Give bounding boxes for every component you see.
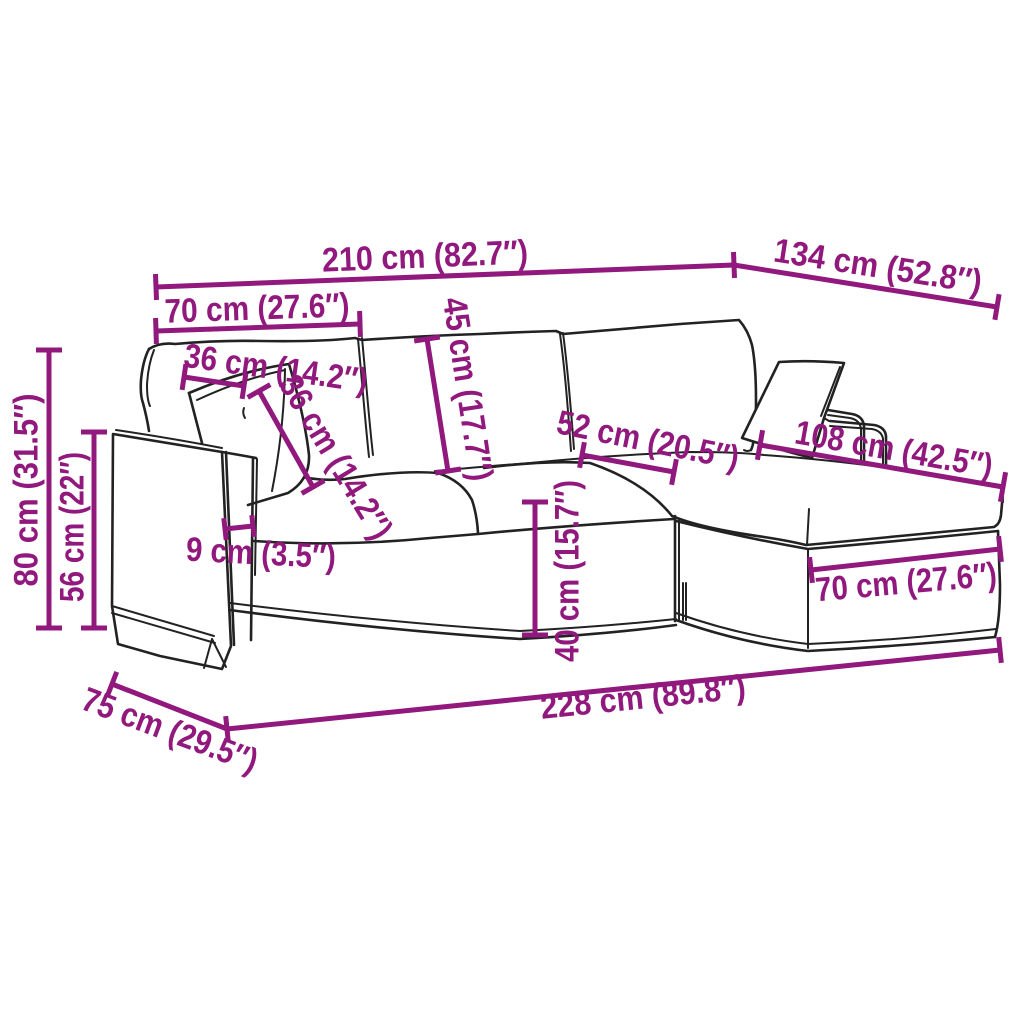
svg-text:70 cm (27.6″): 70 cm (27.6″): [164, 286, 350, 330]
svg-text:40 cm (15.7″): 40 cm (15.7″): [549, 480, 587, 662]
svg-text:9 cm (3.5″): 9 cm (3.5″): [185, 531, 337, 577]
svg-text:56 cm (22″): 56 cm (22″): [54, 452, 92, 602]
svg-text:80 cm (31.5″): 80 cm (31.5″): [8, 394, 46, 587]
